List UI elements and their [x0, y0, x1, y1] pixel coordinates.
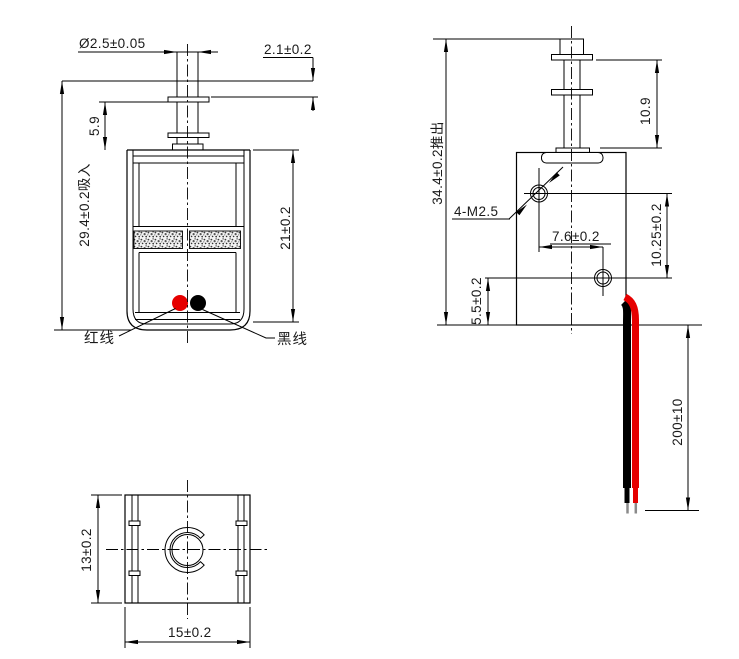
dim-width-label: 15±0.2 [168, 625, 212, 640]
dim-plunger-diameter-label: Ø2.5±0.05 [79, 36, 146, 51]
dim-depth: 13±0.2 [79, 495, 122, 603]
plunger-collar-1-side [552, 55, 593, 61]
dim-lead-wire-length-label: 200±10 [670, 398, 685, 445]
solenoid-case-front [127, 150, 250, 330]
engineering-drawing-canvas: 红线 黑线 Ø2.5±0.05 2.1±0.2 5.9 [0, 0, 739, 659]
dim-overall-height-front-label: 29.4±0.2吸入 [77, 163, 92, 247]
c-clip-and-plunger-end [165, 528, 204, 573]
plunger-shaft-side [552, 39, 593, 153]
plunger-collar-1 [168, 97, 209, 102]
black-wire-dot [190, 295, 206, 311]
bracket-flanges-bottom [132, 495, 244, 603]
solenoid-dimension-drawing: 红线 黑线 Ø2.5±0.05 2.1±0.2 5.9 [0, 0, 739, 659]
black-lead-wire [624, 302, 627, 488]
bushing-flange [542, 153, 604, 164]
dim-lead-wire-length: 200±10 [645, 325, 699, 511]
dim-collar-to-body: 5.9 [87, 102, 170, 150]
plunger-shaft-front [168, 52, 209, 150]
dim-body-height-label: 21±0.2 [278, 206, 293, 250]
dim-depth-label: 13±0.2 [79, 528, 94, 572]
dim-stroke-gap: 2.1±0.2 [211, 42, 318, 111]
black-wire-label: 黑线 [277, 331, 308, 348]
dim-hole-vertical-spacing: 10.25±0.2 [649, 194, 669, 279]
dim-plunger-extension-label: 10.9 [638, 97, 653, 125]
side-view: 4-M2.5 34.4±0.2推出 10.9 7.6±0.2 [428, 26, 702, 514]
dim-hole-horizontal-spacing-label: 7.6±0.2 [552, 229, 600, 244]
flange-notch-1 [129, 521, 140, 526]
thread-callout-label: 4-M2.5 [454, 204, 498, 219]
front-view: 红线 黑线 Ø2.5±0.05 2.1±0.2 5.9 [54, 36, 318, 348]
lead-wires [624, 297, 636, 514]
plunger-collar-2-side [552, 90, 593, 96]
dim-hole-to-bottom: 5.5±0.2 [469, 277, 490, 325]
dim-collar-to-body-label: 5.9 [87, 116, 102, 136]
flange-notch-3 [236, 521, 247, 526]
dim-plunger-extension: 10.9 [596, 60, 662, 148]
dim-body-height: 21±0.2 [253, 150, 299, 322]
dim-stroke-gap-label: 2.1±0.2 [264, 42, 312, 57]
dim-hole-vertical-spacing-label: 10.25±0.2 [649, 203, 664, 267]
dim-hole-to-bottom-label: 5.5±0.2 [469, 277, 484, 325]
red-wire-label: 红线 [84, 330, 115, 347]
flange-notch-4 [236, 571, 247, 576]
dim-overall-height-side-label: 34.4±0.2推出 [430, 121, 445, 204]
plunger-collar-2 [168, 133, 209, 138]
bottom-view: 13±0.2 15±0.2 [79, 480, 270, 648]
coil-section-right [190, 231, 241, 249]
flange-notch-2 [129, 571, 140, 576]
coil-section-left [134, 231, 183, 249]
dim-plunger-diameter: Ø2.5±0.05 [78, 36, 218, 54]
